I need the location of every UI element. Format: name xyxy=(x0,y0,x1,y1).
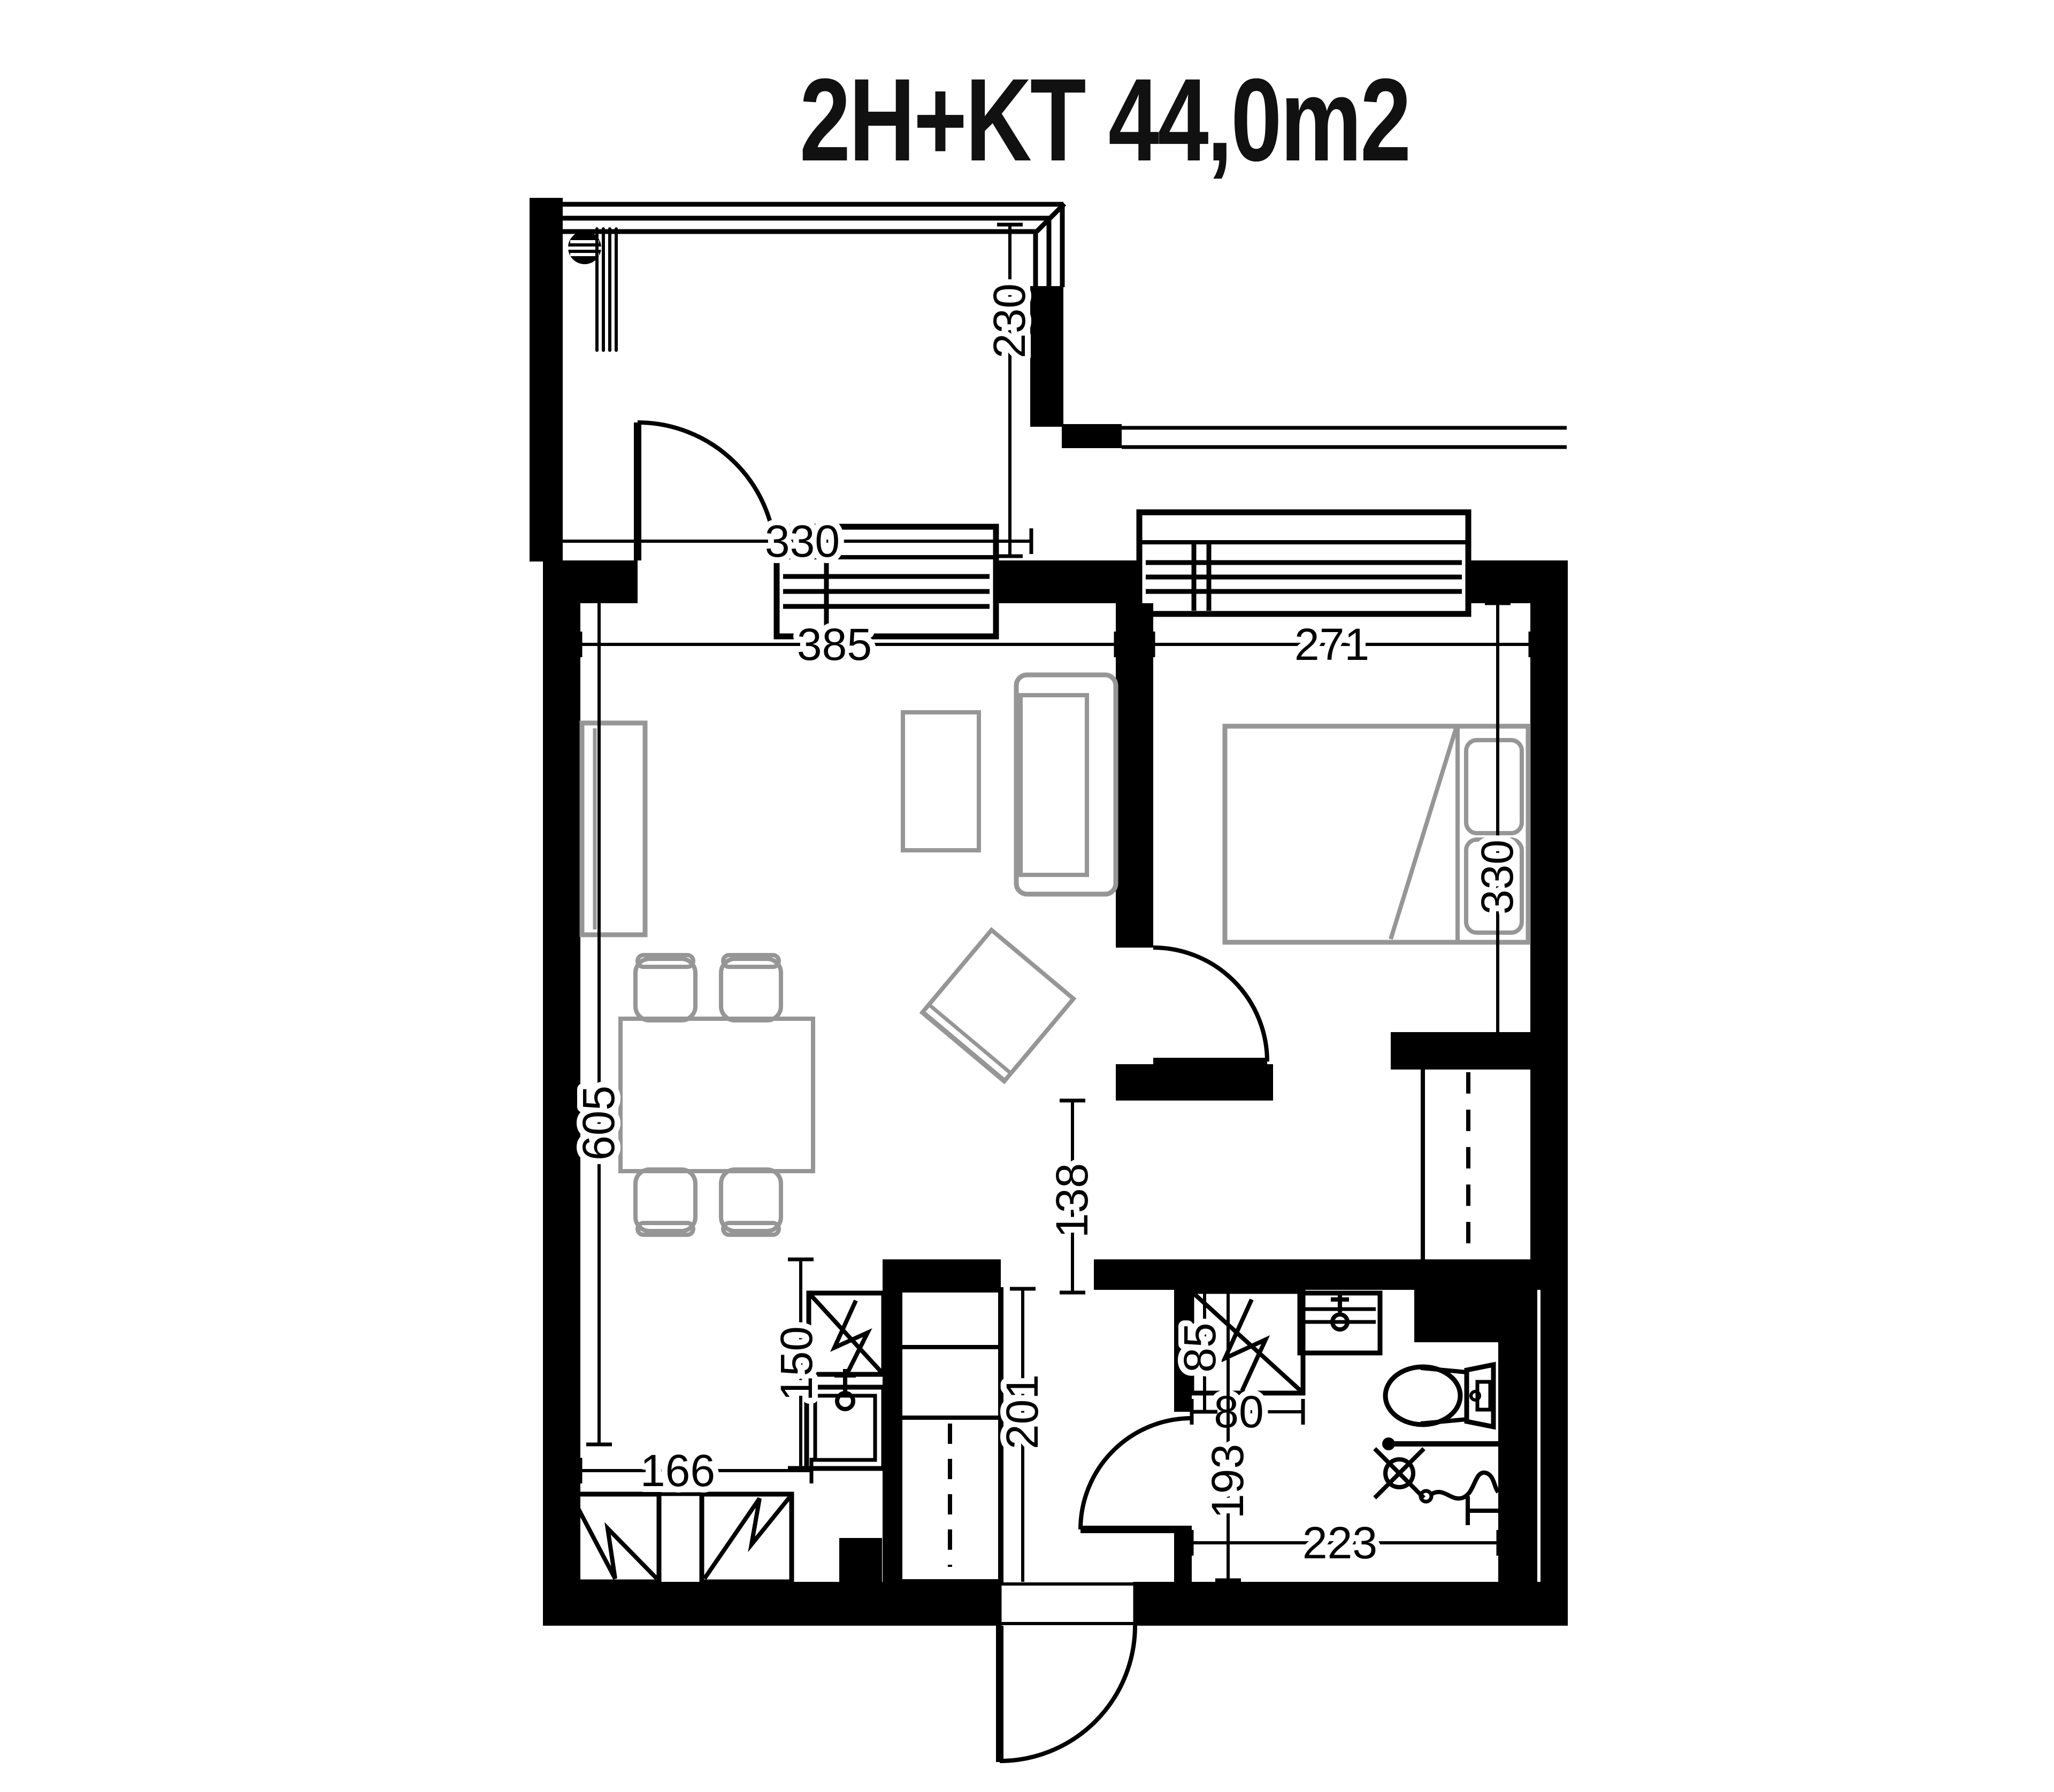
bedroom-door xyxy=(1153,948,1267,1062)
dim-label: 330 xyxy=(1472,840,1522,914)
living-bedroom-wall xyxy=(1116,603,1153,948)
bathroom-west-wall-lower xyxy=(1174,1529,1192,1582)
dim-label: 605 xyxy=(573,1086,624,1160)
bedroom-window xyxy=(1139,512,1468,614)
dim-label: 85 xyxy=(1175,1322,1225,1372)
balcony-left-wall xyxy=(530,198,563,562)
dim-balcony-depth: 230 xyxy=(984,225,1034,556)
dim-label: 223 xyxy=(1302,1518,1377,1568)
dim-hall-clearance: 138 xyxy=(1047,1101,1097,1293)
plan-title: 2H+KT 44,0m2 xyxy=(800,53,1409,185)
dim-living-width: 385 xyxy=(580,619,1116,670)
roof-overhang-lines xyxy=(1122,428,1567,447)
toilet-icon xyxy=(1385,1365,1493,1427)
sofa xyxy=(1016,675,1116,894)
plan-title-text: 2H+KT 44,0m2 xyxy=(800,53,1409,185)
bottom-wall-right xyxy=(1135,1582,1568,1626)
entrance-door xyxy=(1000,1626,1135,1762)
floor-drain-icon xyxy=(1375,1449,1424,1498)
bathroom-top-wall xyxy=(1094,1259,1568,1290)
balcony-right-pillar xyxy=(1030,286,1063,427)
dim-label: 271 xyxy=(1294,619,1369,670)
dim-tall-cabinet: 201 xyxy=(997,1289,1047,1582)
shower-hose-icon xyxy=(1421,1473,1498,1525)
sideboard xyxy=(582,723,645,935)
top-wall-left xyxy=(543,560,638,603)
bathroom-door xyxy=(1080,1418,1192,1529)
floor-plan-svg: 2H+KT 44,0m2 xyxy=(0,0,2054,1792)
balcony-railing xyxy=(562,204,1064,287)
dim-label: 385 xyxy=(797,619,872,670)
dim-label: 166 xyxy=(640,1445,715,1496)
towel-rail-icon xyxy=(1382,1437,1498,1450)
balcony xyxy=(530,198,1567,562)
tv-stand xyxy=(903,712,979,850)
dim-bedroom-width: 271 xyxy=(1153,619,1530,670)
bathroom-east-wall xyxy=(1498,1290,1568,1582)
dim-label: 201 xyxy=(997,1374,1047,1449)
kitchen-end-stub xyxy=(839,1538,882,1582)
hall-north-wall xyxy=(1116,1064,1273,1101)
dining-chairs xyxy=(635,955,781,1235)
pillow xyxy=(1466,740,1522,833)
dim-bathroom-width: 223 xyxy=(1192,1518,1498,1568)
kitchen-tall-cabinet xyxy=(883,1289,1001,1582)
exterior-wall-stub xyxy=(1062,424,1122,448)
dim-label: 330 xyxy=(765,516,840,566)
top-wall-right xyxy=(1468,560,1568,603)
washbasin-icon xyxy=(1300,1293,1380,1353)
dim-kitchen-run: 166 xyxy=(580,1445,811,1496)
dim-label: 150 xyxy=(771,1326,822,1401)
kitchen-base-cabinets xyxy=(570,1494,792,1582)
dim-label: 193 xyxy=(1202,1444,1253,1519)
floor-plan-page: 2H+KT 44,0m2 xyxy=(0,0,2054,1792)
armchair xyxy=(922,930,1074,1081)
dim-label: 138 xyxy=(1047,1163,1097,1238)
dim-label: 80 xyxy=(1214,1387,1263,1437)
top-wall-middle xyxy=(996,560,1139,603)
furniture xyxy=(582,675,1528,1235)
entrance-threshold xyxy=(1000,1584,1135,1624)
dining-table xyxy=(620,1019,813,1171)
kitchen-top-wall xyxy=(883,1259,1001,1289)
bottom-wall-left xyxy=(543,1582,1000,1626)
dim-label: 230 xyxy=(984,283,1034,358)
